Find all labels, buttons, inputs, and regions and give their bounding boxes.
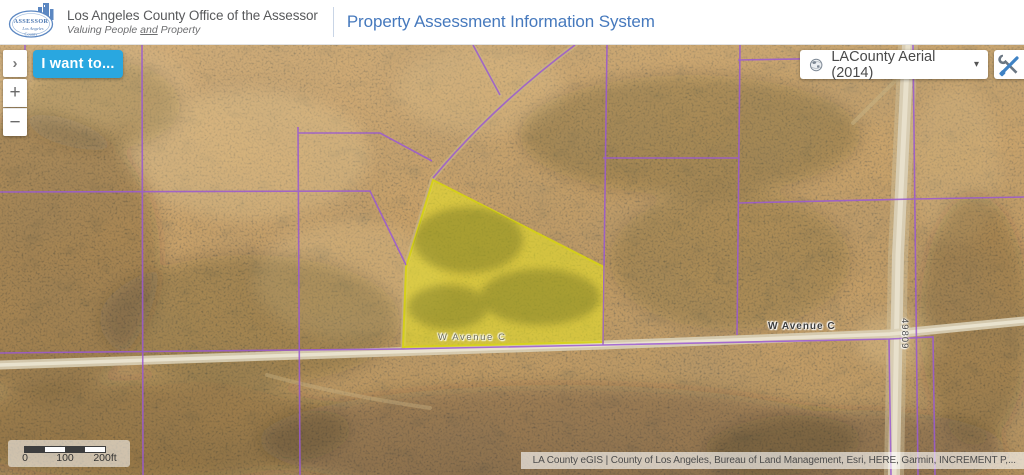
- scale-bar: 0 100 200ft: [8, 440, 130, 467]
- street-number-label: 49809: [899, 318, 910, 349]
- tagline-and: and: [140, 24, 158, 36]
- minus-icon: −: [9, 112, 20, 134]
- page-title: Property Assessment Information System: [347, 12, 655, 32]
- seal-text-sub2: County: [25, 32, 39, 37]
- zoom-out-button[interactable]: −: [3, 108, 27, 136]
- zoom-in-button[interactable]: +: [3, 79, 27, 107]
- org-tagline: Valuing People and Property: [67, 24, 318, 36]
- chevron-down-icon: ▾: [974, 59, 979, 70]
- tools-icon: [997, 53, 1023, 77]
- basemap-selector[interactable]: LACounty Aerial (2014) ▾: [800, 50, 988, 79]
- map-viewport[interactable]: W Avenue C W Avenue C 49809 › I want to.…: [0, 45, 1024, 475]
- header-divider: [333, 7, 334, 37]
- plus-icon: +: [9, 82, 20, 104]
- scale-tick: 200ft: [93, 452, 116, 464]
- expand-panel-button[interactable]: ›: [3, 50, 27, 77]
- basemap-label: LACounty Aerial (2014): [831, 49, 966, 81]
- org-text-block: Los Angeles County Office of the Assesso…: [67, 8, 318, 37]
- scale-tick: 0: [22, 452, 28, 464]
- i-want-to-button[interactable]: I want to...: [33, 50, 123, 78]
- tagline-post: Property: [158, 24, 201, 36]
- tools-button[interactable]: [994, 50, 1024, 79]
- app-header: ASSESSOR Los Angeles County Los Angeles …: [0, 0, 1024, 45]
- map-attribution: LA County eGIS | County of Los Angeles, …: [521, 452, 1024, 469]
- seal-text-sub1: Los Angeles: [21, 26, 44, 31]
- org-name: Los Angeles County Office of the Assesso…: [67, 8, 318, 24]
- tagline-pre: Valuing People: [67, 24, 140, 36]
- road-label: W Avenue C: [768, 321, 836, 332]
- app-window: ASSESSOR Los Angeles County Los Angeles …: [0, 0, 1024, 475]
- scale-tick: 100: [56, 452, 74, 464]
- aerial-imagery: [0, 45, 1024, 475]
- assessor-seal-logo: ASSESSOR Los Angeles County: [8, 2, 58, 42]
- seal-text-main: ASSESSOR: [14, 18, 49, 25]
- road-label: W Avenue C: [438, 332, 507, 343]
- globe-icon: [809, 57, 823, 73]
- chevron-right-icon: ›: [13, 55, 18, 72]
